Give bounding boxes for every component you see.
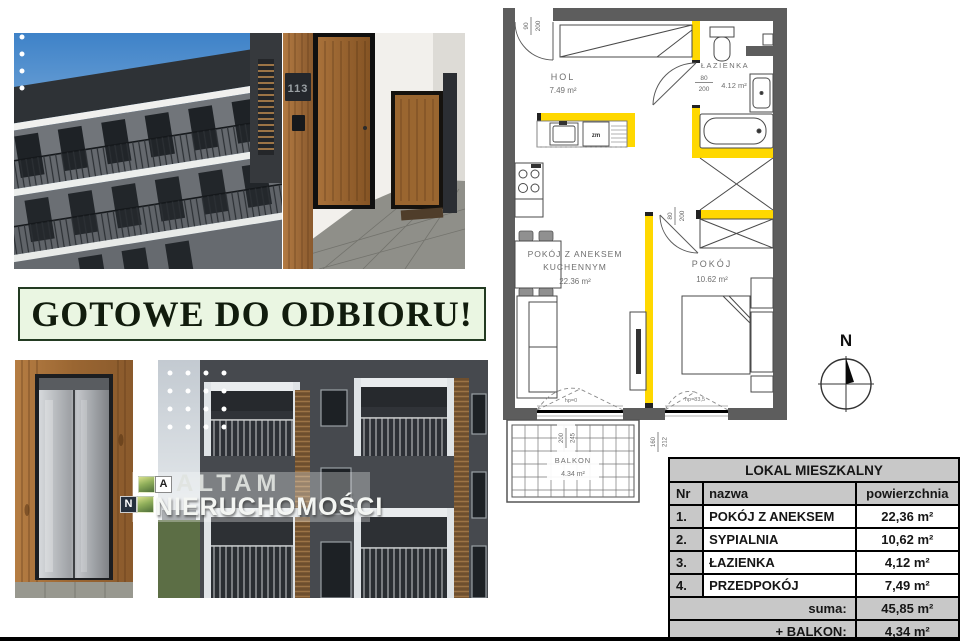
sum-label: suma: bbox=[669, 597, 856, 620]
tiled-floor bbox=[15, 582, 133, 598]
ready-banner: GOTOWE DO ODBIORU! bbox=[18, 287, 486, 341]
wall-end-caps bbox=[537, 60, 701, 408]
dim-bath-door: 80 200 bbox=[695, 75, 713, 93]
hall-wardrobe bbox=[560, 25, 692, 57]
room-labels: HOL 7.49 m² ŁAZIENKA 4.12 m² POKÓJ Z ANE… bbox=[528, 61, 750, 286]
logo-thumbnail-2 bbox=[137, 496, 154, 513]
photo-building-top-left bbox=[14, 33, 282, 269]
row-name: SYPIALNIA bbox=[703, 528, 856, 551]
landscape-strip bbox=[158, 520, 200, 598]
row-area: 7,49 m² bbox=[856, 574, 959, 597]
logo-letter-n-box: N bbox=[120, 496, 137, 513]
table-row: 2. SYPIALNIA 10,62 m² bbox=[669, 528, 959, 551]
compass-needle bbox=[846, 358, 854, 384]
row-name: POKÓJ Z ANEKSEM bbox=[703, 505, 856, 528]
sill-height-right: hp=83,5 bbox=[685, 397, 705, 403]
area-table-title-row: LOKAL MIESZKALNY bbox=[669, 458, 959, 482]
sofa bbox=[517, 296, 557, 398]
balcony: BALKON 4.34 m² bbox=[507, 420, 639, 502]
room-area-pokoj: 10.62 m² bbox=[696, 275, 728, 284]
sum-value: 45,85 m² bbox=[856, 597, 959, 620]
photo-hallway: 113 bbox=[283, 33, 465, 269]
door-number: 113 bbox=[288, 83, 309, 95]
balcony-label: + BALKON: bbox=[669, 620, 856, 641]
elevator-doors bbox=[35, 374, 113, 580]
room-label-lazienka: ŁAZIENKA bbox=[701, 61, 749, 70]
row-name: PRZEDPOKÓJ bbox=[703, 574, 856, 597]
wood-pillar: 113 bbox=[283, 33, 313, 269]
room-label-pokoj: POKÓJ bbox=[692, 259, 733, 269]
dim-entrance: 90 200 bbox=[523, 17, 542, 35]
row-nr: 3. bbox=[669, 551, 703, 574]
dim-bedroom-window-h: 212 bbox=[663, 436, 669, 447]
kitchen-counter bbox=[537, 121, 627, 147]
table-row: 1. POKÓJ Z ANEKSEM 22,36 m² bbox=[669, 505, 959, 528]
dim-bath-door-w: 80 bbox=[700, 75, 708, 82]
row-nr: 2. bbox=[669, 528, 703, 551]
stove bbox=[515, 163, 543, 217]
logo-thumbnail-1 bbox=[138, 476, 155, 493]
col-header-nr: Nr bbox=[669, 482, 703, 505]
room-label-salon-1: POKÓJ Z ANEKSEM bbox=[528, 249, 623, 259]
dim-entrance-w: 90 bbox=[523, 22, 530, 30]
row-nr: 4. bbox=[669, 574, 703, 597]
closet-shaft bbox=[700, 158, 773, 210]
logo-letter-a: A bbox=[160, 479, 168, 490]
balcony-row: + BALKON: 4,34 m² bbox=[669, 620, 959, 641]
bedroom-window-opening bbox=[665, 391, 728, 416]
dishwasher-label: zm bbox=[592, 133, 600, 139]
wood-slat-accent bbox=[258, 59, 274, 155]
row-nr: 1. bbox=[669, 505, 703, 528]
kitchen-sink bbox=[553, 126, 575, 142]
balcony-value: 4,34 m² bbox=[856, 620, 959, 641]
row-area: 22,36 m² bbox=[856, 505, 959, 528]
room-label-hol: HOL bbox=[551, 72, 576, 82]
toilet-tank bbox=[710, 27, 734, 37]
tv-unit bbox=[630, 312, 646, 390]
dim-balcony-door-h: 245 bbox=[571, 432, 577, 443]
compass-rose: N bbox=[812, 326, 882, 422]
logo-letter-a-box: A bbox=[155, 476, 172, 493]
brand-name-bottom: NIERUCHOMOŚCI bbox=[155, 493, 383, 522]
brand-logo: A ALTAM N NIERUCHOMOŚCI bbox=[118, 468, 372, 526]
col-header-name: nazwa bbox=[703, 482, 856, 505]
second-door bbox=[391, 91, 443, 209]
dim-bedroom-window: 160 212 bbox=[651, 432, 669, 452]
row-area: 4,12 m² bbox=[856, 551, 959, 574]
logo-letter-n: N bbox=[125, 499, 133, 510]
dim-bath-door-h: 200 bbox=[699, 86, 710, 93]
sum-row: suma: 45,85 m² bbox=[669, 597, 959, 620]
room-area-balkon: 4.34 m² bbox=[561, 471, 585, 478]
bedroom-wardrobe bbox=[700, 219, 773, 248]
balcony-upper-right bbox=[354, 378, 454, 456]
toilet-bowl bbox=[714, 37, 730, 61]
intercom-panel bbox=[292, 115, 305, 131]
row-area: 10,62 m² bbox=[856, 528, 959, 551]
table-row: 3. ŁAZIENKA 4,12 m² bbox=[669, 551, 959, 574]
room-area-lazienka: 4.12 m² bbox=[721, 81, 747, 90]
dim-bedroom-window-w: 160 bbox=[651, 436, 657, 447]
flyer-canvas: 113 GOTOWE DO ODBIORU! bbox=[0, 0, 960, 641]
room-area-salon: 22.36 m² bbox=[559, 277, 591, 286]
area-table-title: LOKAL MIESZKALNY bbox=[669, 458, 959, 482]
table-row: 4. PRZEDPOKÓJ 7,49 m² bbox=[669, 574, 959, 597]
col-header-area: powierzchnia bbox=[856, 482, 959, 505]
room-label-balkon: BALKON bbox=[555, 456, 591, 465]
area-table-header-row: Nr nazwa powierzchnia bbox=[669, 482, 959, 505]
dim-balcony-door-w: 200 bbox=[559, 432, 565, 443]
photo-elevator bbox=[15, 360, 133, 598]
dim-entrance-h: 200 bbox=[535, 20, 542, 31]
bed bbox=[682, 278, 773, 392]
row-name: ŁAZIENKA bbox=[703, 551, 856, 574]
dim-bedroom-door-h: 200 bbox=[679, 210, 686, 221]
room-label-salon-2: KUCHENNYM bbox=[543, 262, 607, 272]
room-area-hol: 7.49 m² bbox=[549, 86, 576, 95]
apartment-door bbox=[313, 33, 375, 209]
balcony-upper-left bbox=[204, 382, 300, 456]
floor-plan: zm bbox=[495, 0, 795, 510]
dim-bedroom-door-w: 80 bbox=[667, 212, 674, 220]
sill-height-left: hp=0 bbox=[565, 398, 577, 404]
compass-north-label: N bbox=[840, 331, 852, 350]
dim-bedroom-door: 80 200 bbox=[667, 207, 686, 225]
area-table: LOKAL MIESZKALNY Nr nazwa powierzchnia 1… bbox=[668, 457, 960, 641]
ready-banner-text: GOTOWE DO ODBIORU! bbox=[31, 293, 472, 335]
